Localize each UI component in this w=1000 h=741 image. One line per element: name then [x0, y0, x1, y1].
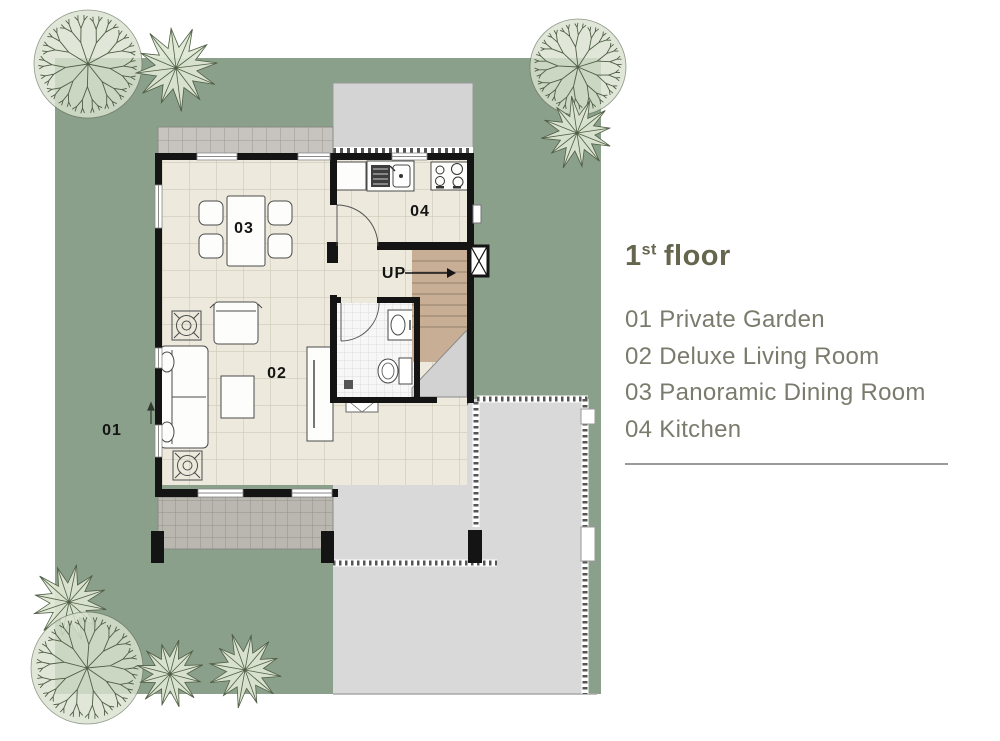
room-label-living: 02	[267, 365, 287, 383]
top-service-slab	[333, 83, 473, 153]
front-porch-top	[158, 127, 333, 155]
porch-post	[151, 531, 164, 563]
stove-icon	[431, 162, 469, 190]
legend-list: 01 Private Garden 02 Deluxe Living Room …	[625, 302, 970, 448]
kitchen-sink-icon	[367, 161, 414, 191]
kitchen-cabinet-icon	[333, 162, 366, 190]
sofa-icon	[160, 346, 208, 448]
vent-marker	[473, 205, 481, 223]
coffee-table-icon	[221, 376, 254, 418]
porch-post	[321, 531, 334, 563]
kitchen-counter	[333, 161, 469, 191]
floor-plan-canvas: 01 02 03 04 UP 1stfloor 01 Private Garde…	[0, 0, 1000, 741]
stairs-up-label: UP	[382, 265, 406, 283]
legend-item-private-garden: 01 Private Garden	[625, 302, 970, 339]
toilet-icon	[378, 358, 412, 384]
bathroom-sink-icon	[388, 310, 414, 340]
room-label-garden: 01	[102, 422, 122, 440]
stair-window-icon	[470, 246, 488, 276]
legend-item-kitchen: 04 Kitchen	[625, 412, 970, 449]
floor-drain-icon	[344, 380, 353, 389]
armchair-icon	[210, 302, 262, 344]
legend-item-living-room: 02 Deluxe Living Room	[625, 339, 970, 376]
legend-divider	[625, 463, 948, 465]
legend-title: 1stfloor	[625, 240, 970, 273]
legend-item-dining-room: 03 Panoramic Dining Room	[625, 375, 970, 412]
room-label-dining: 03	[234, 220, 254, 238]
legend: 1stfloor 01 Private Garden 02 Deluxe Liv…	[625, 240, 970, 465]
room-label-kitchen: 04	[410, 203, 430, 221]
bathroom	[336, 303, 414, 397]
tv-console-icon	[307, 347, 333, 441]
